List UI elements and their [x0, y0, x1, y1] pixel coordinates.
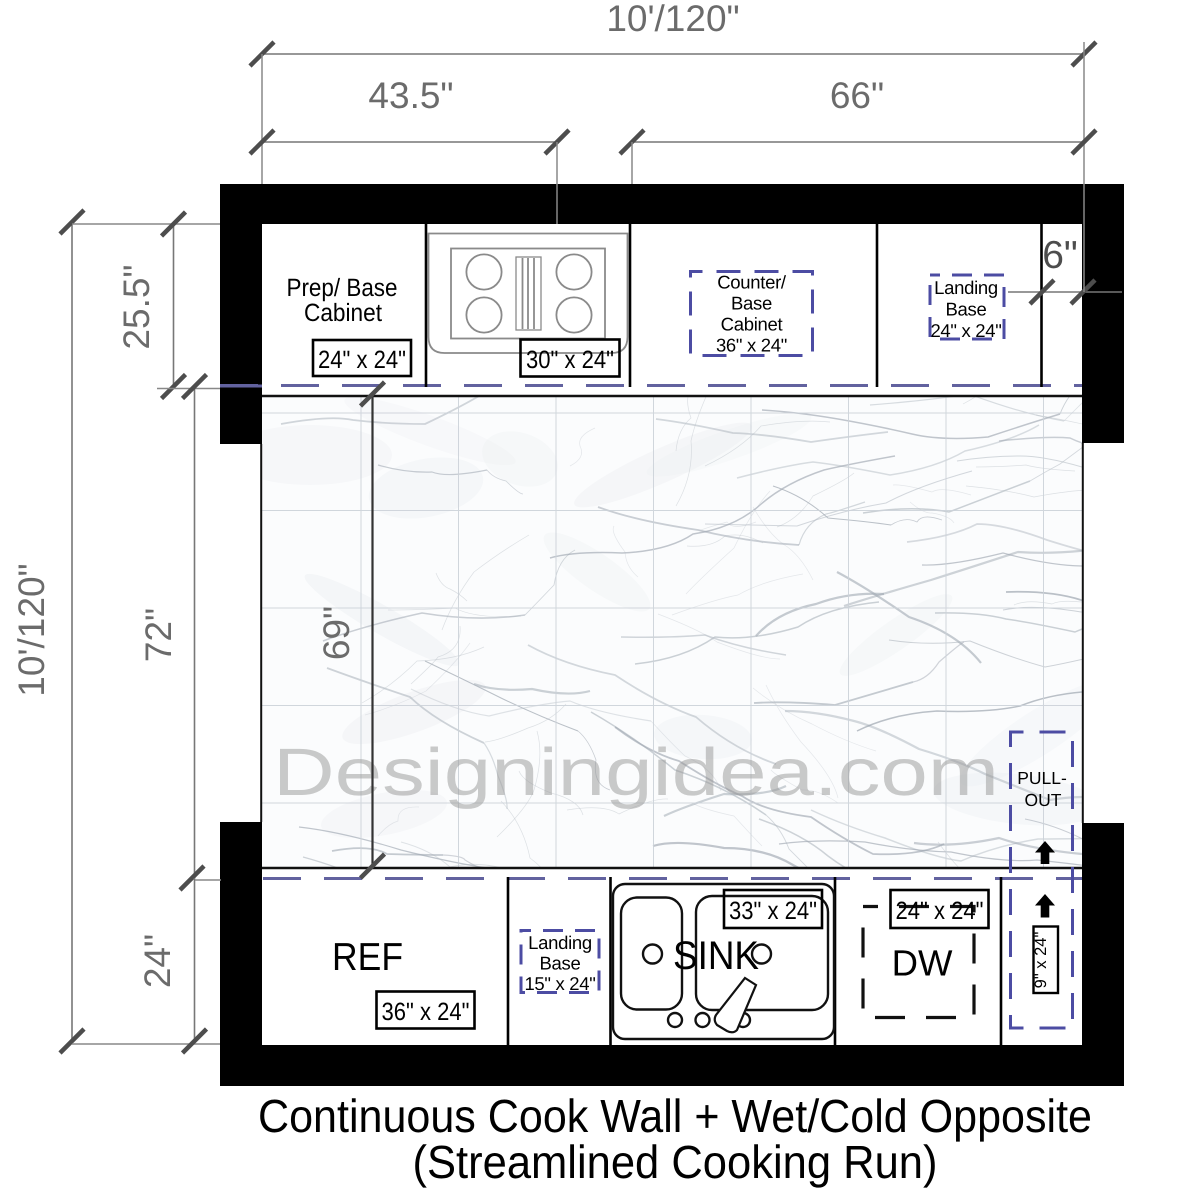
svg-text:30" x 24": 30" x 24" — [526, 346, 614, 374]
svg-text:Prep/ Base: Prep/ Base — [287, 274, 398, 302]
svg-text:Counter/: Counter/ — [717, 272, 787, 293]
svg-text:66": 66" — [830, 75, 884, 116]
svg-text:SINK: SINK — [673, 934, 759, 978]
svg-text:24" x 24": 24" x 24" — [930, 320, 1001, 341]
svg-text:69": 69" — [316, 606, 357, 660]
svg-text:33" x 24": 33" x 24" — [729, 897, 817, 925]
svg-text:24": 24" — [137, 934, 178, 988]
svg-text:Base: Base — [731, 293, 772, 314]
svg-text:6": 6" — [1042, 234, 1078, 277]
svg-text:PULL-: PULL- — [1017, 768, 1067, 788]
svg-text:DW: DW — [892, 943, 953, 984]
svg-text:REF: REF — [332, 936, 403, 979]
svg-text:Landing: Landing — [528, 932, 592, 953]
svg-text:Continuous Cook Wall + Wet/Col: Continuous Cook Wall + Wet/Cold Opposite — [258, 1090, 1092, 1142]
svg-text:Designingidea.com: Designingidea.com — [273, 735, 999, 810]
svg-text:9" x 24": 9" x 24" — [1032, 932, 1050, 989]
svg-text:72": 72" — [138, 608, 179, 662]
svg-text:15" x 24": 15" x 24" — [524, 973, 595, 994]
svg-text:OUT: OUT — [1025, 790, 1062, 810]
svg-text:Base: Base — [540, 953, 581, 974]
svg-text:24" x 24": 24" x 24" — [896, 897, 984, 925]
svg-text:(Streamlined Cooking Run): (Streamlined Cooking Run) — [413, 1136, 938, 1188]
svg-text:Base: Base — [946, 299, 987, 320]
svg-text:Cabinet: Cabinet — [304, 299, 382, 327]
svg-text:36" x 24": 36" x 24" — [382, 998, 470, 1026]
svg-text:36" x 24": 36" x 24" — [716, 335, 787, 356]
svg-text:Landing: Landing — [934, 277, 998, 298]
svg-text:24" x 24": 24" x 24" — [318, 346, 406, 374]
svg-text:10'/120": 10'/120" — [606, 0, 739, 39]
svg-text:43.5": 43.5" — [368, 75, 453, 116]
svg-text:25.5": 25.5" — [116, 264, 157, 349]
svg-text:10'/120": 10'/120" — [11, 563, 52, 696]
svg-text:Cabinet: Cabinet — [721, 314, 783, 335]
